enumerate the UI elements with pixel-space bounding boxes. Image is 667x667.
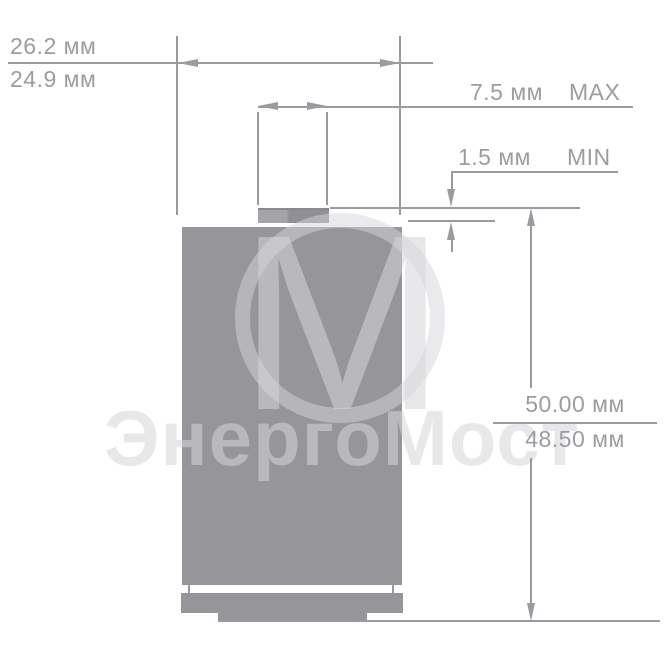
height-dimension-line-lower [530,458,532,603]
width-max-label: 26.2 мм [10,34,96,59]
battery-base [181,593,403,613]
battery-crimp-tick-left [188,585,190,594]
cap-seat-reference-line [408,220,495,222]
cap-height-label: 1.5 мм MIN [458,144,611,171]
height-label-separator-line [493,422,657,424]
height-dimension-line-upper [530,222,532,388]
cap-diameter-arrow-left-icon [258,102,278,110]
battery-crimp-tick-right [392,585,394,594]
cap-top-reference-line [330,207,580,209]
cap-diameter-qualifier: MAX [569,79,620,106]
drawing-canvas: М ЭнергоМост 26.2 мм 24.9 мм 7.5 мм MAX … [0,0,667,667]
cap-diameter-arrow-right-icon [307,102,327,110]
width-dimension-line [8,62,433,64]
bottom-reference-line [218,620,660,622]
height-arrow-down-icon [527,603,535,621]
cap-height-value: 1.5 мм [458,144,531,171]
cap-height-qualifier: MIN [567,144,611,171]
width-arrow-left-icon [178,59,198,67]
cap-diameter-label: 7.5 мм MAX [470,79,620,106]
height-min-label: 48.50 мм [493,427,657,452]
cap-height-arrow-down-icon [447,189,455,207]
cap-diameter-value: 7.5 мм [470,79,543,106]
cap-height-leader-line [451,171,618,173]
height-max-label: 50.00 мм [493,392,657,417]
cap-height-arrow-tail [451,238,453,252]
width-min-label: 24.9 мм [10,67,96,92]
cap-diameter-extension-line-right [326,112,328,205]
width-arrow-right-icon [380,59,400,67]
cap-diameter-extension-line-left [257,112,259,205]
